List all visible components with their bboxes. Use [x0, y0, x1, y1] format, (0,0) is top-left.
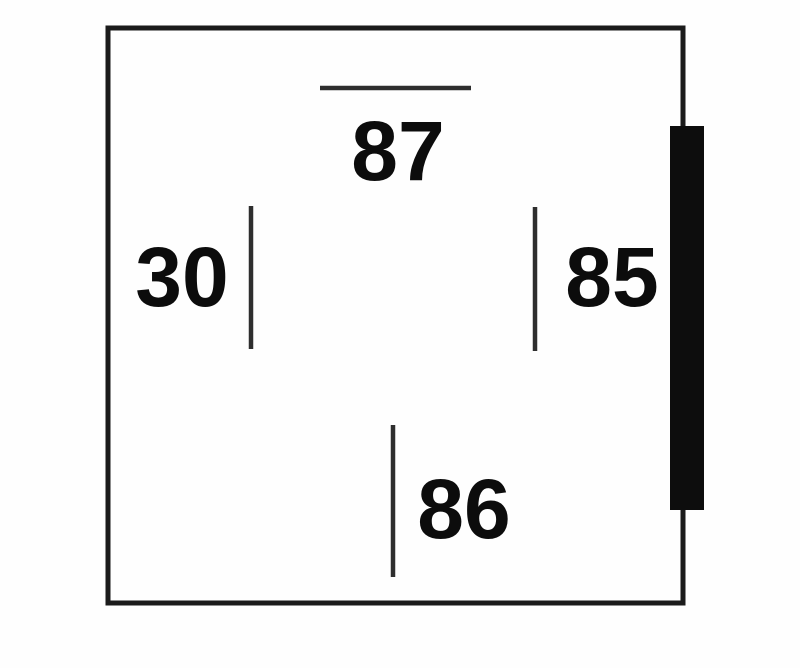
svg-text:85: 85	[565, 230, 658, 324]
svg-text:87: 87	[351, 104, 444, 198]
svg-text:30: 30	[135, 230, 228, 324]
svg-text:86: 86	[417, 462, 510, 556]
